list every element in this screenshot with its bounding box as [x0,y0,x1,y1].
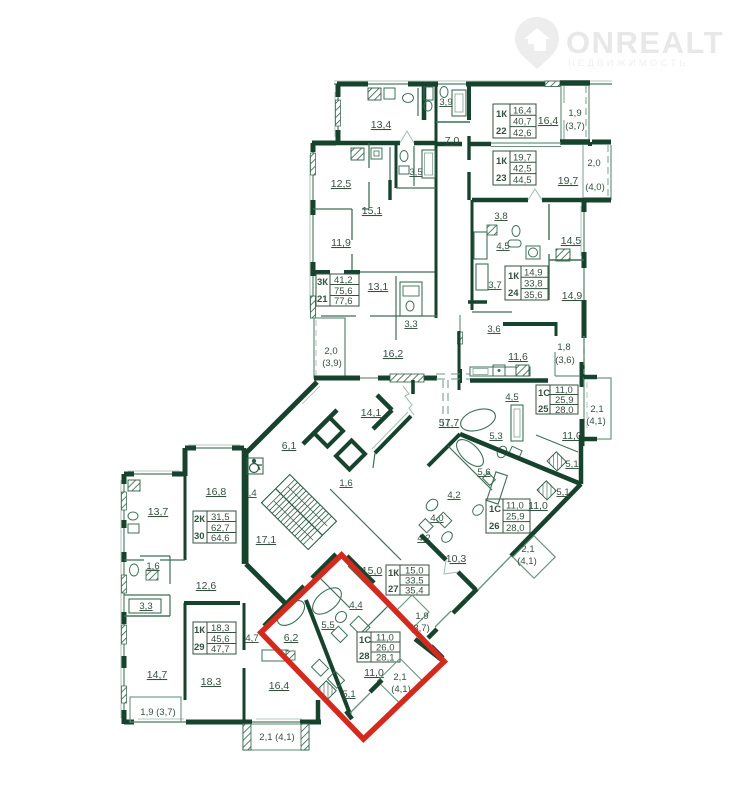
svg-text:3,7: 3,7 [488,280,501,291]
svg-text:42,5: 42,5 [513,164,532,175]
svg-text:35,6: 35,6 [524,290,543,301]
svg-text:17,1: 17,1 [256,534,277,546]
svg-text:21: 21 [317,294,328,305]
svg-text:40,7: 40,7 [513,117,532,128]
svg-text:3,6: 3,6 [487,324,500,335]
svg-text:27: 27 [388,584,399,595]
svg-text:11,9: 11,9 [331,237,351,249]
svg-text:2,1: 2,1 [393,672,406,683]
svg-text:1,6: 1,6 [146,561,159,572]
svg-text:28,0: 28,0 [555,405,574,416]
svg-text:14,5: 14,5 [561,235,582,247]
svg-text:5,3: 5,3 [489,431,502,442]
svg-text:НЕДВИЖИМОСТЬ: НЕДВИЖИМОСТЬ [568,58,689,69]
svg-text:4,4: 4,4 [349,600,362,611]
svg-text:2К: 2К [194,514,205,525]
svg-text:1,9: 1,9 [568,108,581,119]
svg-text:29: 29 [194,642,205,653]
svg-text:18,3: 18,3 [211,623,230,634]
svg-text:16,4: 16,4 [538,115,559,127]
svg-text:44,5: 44,5 [513,175,532,186]
svg-text:64,6: 64,6 [211,533,230,544]
svg-text:28,0: 28,0 [506,523,525,534]
svg-text:42,6: 42,6 [513,128,532,139]
svg-text:5,1: 5,1 [565,459,578,470]
svg-text:(4,1): (4,1) [586,416,606,427]
svg-text:11,6: 11,6 [508,351,528,363]
svg-text:12,5: 12,5 [331,178,352,190]
svg-text:5,1: 5,1 [342,689,355,700]
svg-text:6,1: 6,1 [282,440,297,452]
svg-text:16,8: 16,8 [206,486,227,498]
svg-text:2,1 (4,1): 2,1 (4,1) [259,732,294,743]
svg-text:77,6: 77,6 [334,296,353,307]
svg-text:1С: 1С [538,388,550,399]
svg-text:2,1: 2,1 [590,404,603,415]
svg-text:3,8: 3,8 [494,211,507,222]
svg-text:3,9: 3,9 [439,97,452,108]
svg-text:11,0: 11,0 [506,501,524,512]
svg-text:14,7: 14,7 [147,669,168,681]
svg-text:3К: 3К [317,277,328,288]
svg-text:19,7: 19,7 [513,153,532,164]
svg-text:47,7: 47,7 [211,644,230,655]
svg-text:1С: 1С [359,635,371,646]
svg-text:28: 28 [359,651,370,662]
svg-text:3,5: 3,5 [409,167,422,178]
svg-text:22: 22 [496,126,507,137]
svg-text:ONREALT: ONREALT [566,25,724,60]
svg-text:1,6: 1,6 [339,478,352,489]
svg-text:1,8: 1,8 [557,342,570,353]
svg-text:41,2: 41,2 [334,275,353,286]
svg-text:1К: 1К [496,156,507,167]
svg-text:16,4: 16,4 [513,106,532,117]
svg-text:3,3: 3,3 [404,319,417,330]
svg-text:1К: 1К [496,109,507,120]
svg-text:4,2: 4,2 [447,490,460,501]
svg-text:1К: 1К [194,625,205,636]
svg-text:16,4: 16,4 [269,680,290,692]
svg-text:1,9 (3,7): 1,9 (3,7) [140,707,175,718]
svg-text:(3,6): (3,6) [555,355,575,366]
svg-text:5,1: 5,1 [556,487,569,498]
svg-text:11,0: 11,0 [528,500,548,512]
svg-text:12,6: 12,6 [196,580,217,592]
svg-text:4,5: 4,5 [505,392,518,403]
svg-text:2,0: 2,0 [587,158,600,169]
svg-text:33,8: 33,8 [524,279,543,290]
svg-text:(3,7): (3,7) [565,121,585,132]
svg-text:1С: 1С [489,504,501,515]
svg-text:5,5: 5,5 [321,620,334,631]
svg-text:6,2: 6,2 [284,632,299,644]
svg-text:7,0: 7,0 [445,135,460,147]
svg-text:14,1: 14,1 [361,407,382,419]
svg-text:(3,9): (3,9) [322,358,342,369]
svg-text:1,9: 1,9 [415,611,428,622]
svg-text:2,1: 2,1 [521,544,534,555]
svg-text:23: 23 [496,173,507,184]
svg-text:2,0: 2,0 [324,346,337,357]
svg-text:35,4: 35,4 [405,586,424,597]
svg-text:30: 30 [194,531,205,542]
svg-text:13,1: 13,1 [368,281,389,293]
svg-text:14,9: 14,9 [524,268,543,279]
svg-text:57,7: 57,7 [439,417,460,429]
svg-text:4,7: 4,7 [245,633,258,644]
svg-text:3,3: 3,3 [139,601,152,612]
svg-text:(4,0): (4,0) [585,182,605,193]
svg-text:14,9: 14,9 [562,290,583,302]
svg-text:1К: 1К [508,271,519,282]
svg-text:25,9: 25,9 [506,512,525,523]
svg-text:19,7: 19,7 [558,175,579,187]
svg-text:28,1: 28,1 [376,653,395,664]
svg-text:13,4: 13,4 [371,119,392,131]
svg-text:(4,1): (4,1) [517,556,537,567]
svg-text:24: 24 [508,288,519,299]
svg-text:31,5: 31,5 [211,512,230,523]
svg-text:13,7: 13,7 [148,506,169,518]
svg-text:26: 26 [489,521,500,532]
svg-text:4,5: 4,5 [496,241,509,252]
svg-text:18,3: 18,3 [201,676,222,688]
svg-text:25: 25 [538,404,549,415]
svg-text:1К: 1К [388,568,399,579]
svg-text:15,1: 15,1 [362,205,383,217]
svg-text:16,2: 16,2 [383,348,404,360]
